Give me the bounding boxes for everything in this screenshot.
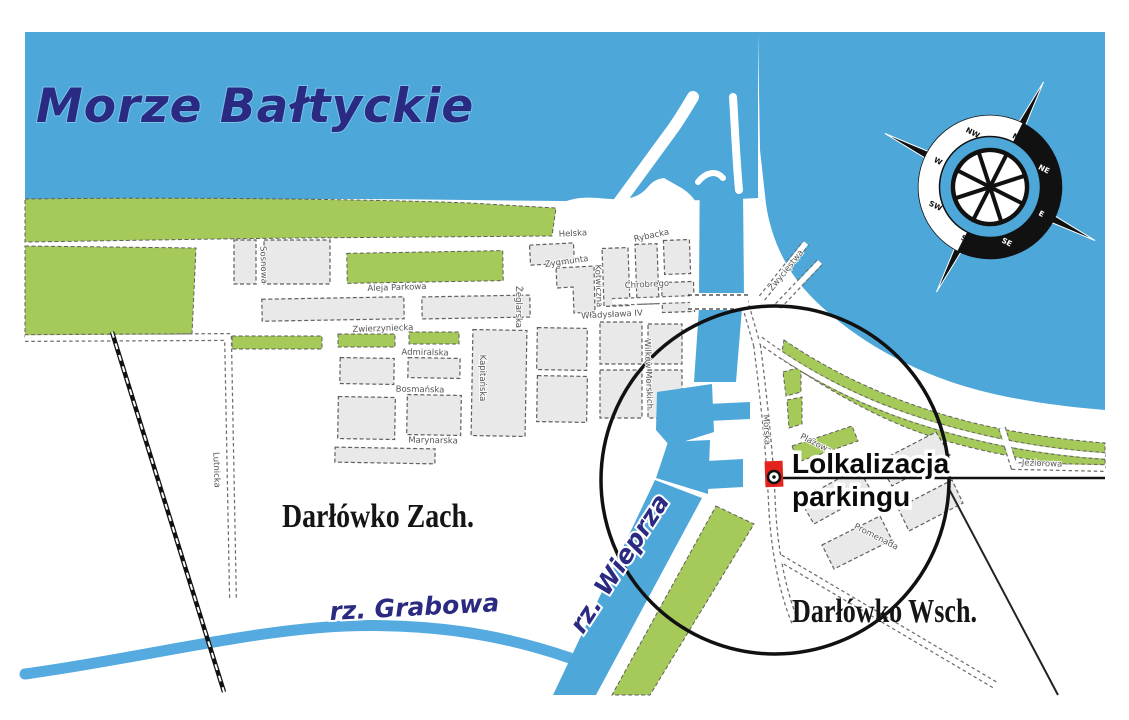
park-band [347,251,503,284]
green-left-block [25,246,196,337]
green-parcel [787,397,802,428]
railway-line [112,332,224,692]
city-block [264,240,330,284]
dune-strip-west [25,198,556,242]
city-block [537,328,588,371]
street-label: Helska [558,228,587,239]
canal-bridge [688,293,750,310]
street-label: Aleja Parkowa [367,282,426,294]
street-label: Admiralska [401,348,448,359]
map-canvas: Aleja Parkowa Zwierzyniecka Admiralska B… [0,0,1129,720]
parking-label-line1: Lolkalizacja [792,448,950,479]
green-parcel [783,367,801,396]
darlowko-map: Aleja Parkowa Zwierzyniecka Admiralska B… [0,0,1129,720]
street-label: Kapitańska [477,355,487,402]
river-grabowa [25,626,570,674]
city-block [338,397,396,440]
street-label: Władysława IV [581,308,643,321]
district-label-west: Darłówko Zach. [282,498,474,535]
parking-label-line2: parkingu [792,481,910,512]
street-label: Sosnowa [257,246,268,284]
city-block [407,395,462,436]
city-block [600,322,642,364]
street-label: Marynarska [408,436,458,447]
city-block [262,297,404,321]
green-bar [232,336,322,349]
street-label: Żeglarska [513,286,524,328]
city-block [537,376,588,423]
street-label: Kotwiczna [592,264,603,307]
city-block [234,240,256,284]
street-label: Jeziorowa [1021,458,1063,469]
street-label: Zwierzyniecka [352,323,413,335]
city-block [663,240,690,275]
river-label-grabowa: rz. Grabowa [329,588,500,626]
district-label-east: Darłówko Wsch. [792,593,977,630]
street-label: Lutnicka [210,452,221,488]
green-bar [338,334,395,347]
city-block [556,266,595,313]
street-label: Morska [760,414,772,445]
parking-marker [765,461,784,488]
street-label: Bosmańska [396,385,445,396]
sea-title: Morze Bałtyckie [36,79,474,134]
green-bar [409,332,459,344]
city-block [340,358,394,385]
city-block [635,244,659,305]
city-block [408,358,460,379]
city-block [335,447,435,464]
